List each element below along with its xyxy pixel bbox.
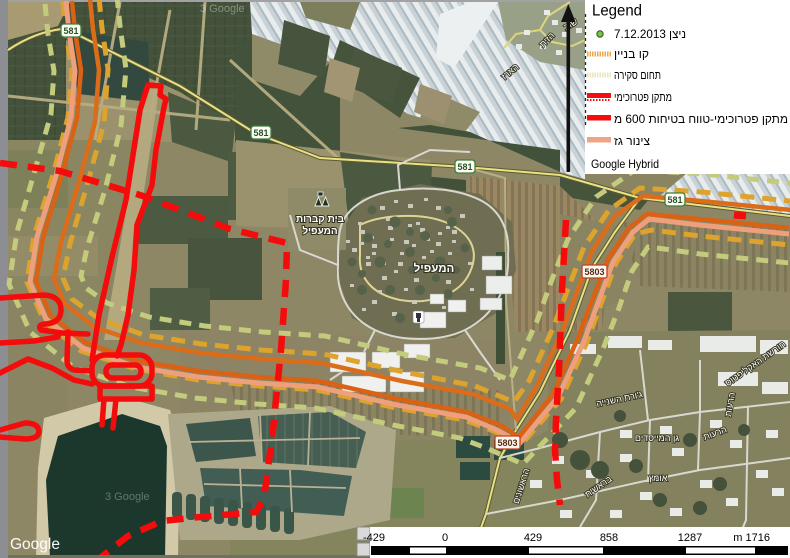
svg-text:Google Hybrid: Google Hybrid <box>591 157 659 171</box>
svg-text:קו בניין: קו בניין <box>614 49 649 61</box>
svg-text:מתקן פטרוכימי-טווח בטיחות 600: מתקן פטרוכימי-טווח בטיחות 600 מ <box>614 114 788 126</box>
svg-text:אומץ: אומץ <box>649 473 668 483</box>
svg-text:5803: 5803 <box>497 438 517 448</box>
svg-text:7.12.2013 ניצן: 7.12.2013 ניצן <box>614 29 686 41</box>
svg-text:Google: Google <box>10 536 60 553</box>
svg-text:m 1716: m 1716 <box>733 532 770 544</box>
svg-text:5803: 5803 <box>584 267 604 277</box>
svg-text:תחום סקירה: תחום סקירה <box>614 70 661 82</box>
svg-text:מתקן פטרוכימי: מתקן פטרוכימי <box>614 92 672 104</box>
svg-text:Legend: Legend <box>592 3 642 20</box>
svg-text:צינור גז: צינור גז <box>614 136 650 148</box>
svg-text:-429: -429 <box>363 532 385 544</box>
svg-text:3 Google: 3 Google <box>200 3 245 15</box>
svg-text:858: 858 <box>600 532 618 544</box>
svg-text:581: 581 <box>667 195 682 205</box>
svg-text:בית קברות: בית קברות <box>296 214 345 225</box>
svg-text:581: 581 <box>253 128 268 138</box>
svg-text:581: 581 <box>457 162 472 172</box>
svg-text:3 Google: 3 Google <box>105 491 150 503</box>
svg-text:המעפיל: המעפיל <box>302 225 337 237</box>
svg-text:1287: 1287 <box>678 532 702 544</box>
svg-text:גן המייסדים: גן המייסדים <box>635 433 679 443</box>
svg-text:581: 581 <box>63 26 78 36</box>
svg-text:429: 429 <box>524 532 542 544</box>
svg-text:המעפיל: המעפיל <box>414 262 455 275</box>
svg-text:0: 0 <box>442 532 448 544</box>
